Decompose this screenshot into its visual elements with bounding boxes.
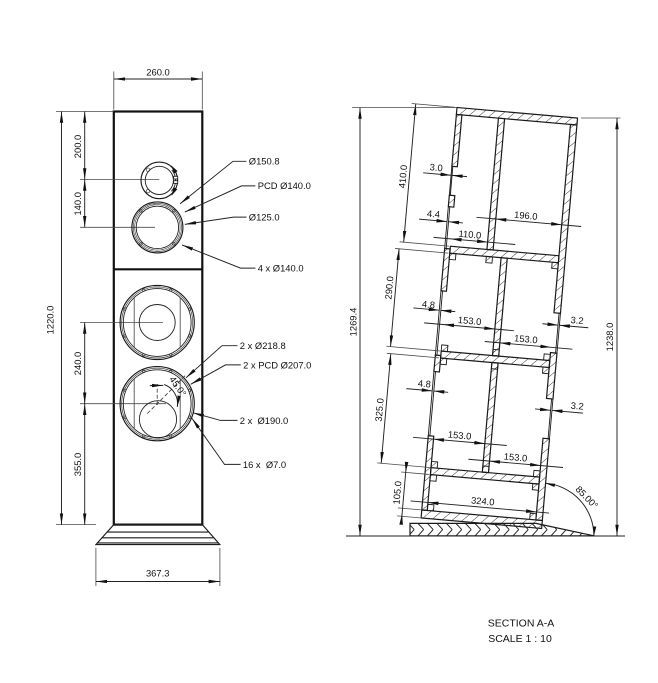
- svg-text:3.2: 3.2: [570, 314, 584, 326]
- svg-text:105.0: 105.0: [390, 481, 403, 505]
- svg-text:SCALE 1 : 10: SCALE 1 : 10: [488, 633, 552, 645]
- svg-text:4.8: 4.8: [417, 377, 431, 389]
- svg-text:4.8: 4.8: [422, 298, 436, 310]
- svg-text:1269.4: 1269.4: [347, 308, 358, 337]
- svg-text:240.0: 240.0: [72, 352, 83, 375]
- svg-text:3.0: 3.0: [429, 161, 443, 173]
- svg-text:153.0: 153.0: [447, 429, 471, 442]
- svg-text:2 x PCD Ø207.0: 2 x PCD Ø207.0: [243, 359, 311, 370]
- svg-text:1238.0: 1238.0: [604, 323, 615, 352]
- svg-text:290.0: 290.0: [382, 276, 395, 300]
- svg-text:367.3: 367.3: [146, 568, 169, 579]
- svg-text:16 x Ø7.0: 16 x Ø7.0: [243, 459, 286, 470]
- svg-text:153.0: 153.0: [514, 332, 538, 345]
- svg-text:153.0: 153.0: [503, 451, 527, 464]
- svg-text:SECTION A-A: SECTION A-A: [488, 618, 555, 630]
- svg-text:1220.0: 1220.0: [45, 306, 56, 335]
- svg-text:PCD Ø140.0: PCD Ø140.0: [258, 180, 311, 191]
- svg-text:324.0: 324.0: [471, 494, 495, 507]
- svg-text:Ø125.0: Ø125.0: [249, 211, 280, 222]
- svg-text:355.0: 355.0: [72, 453, 83, 476]
- svg-text:140.0: 140.0: [72, 192, 83, 215]
- svg-text:110.0: 110.0: [458, 228, 482, 241]
- svg-text:410.0: 410.0: [396, 164, 409, 188]
- svg-text:2 x Ø190.0: 2 x Ø190.0: [240, 415, 288, 426]
- svg-text:4.4: 4.4: [427, 208, 441, 220]
- svg-text:4 x Ø140.0: 4 x Ø140.0: [258, 262, 304, 273]
- svg-text:153.0: 153.0: [458, 314, 482, 327]
- svg-text:260.0: 260.0: [146, 67, 169, 78]
- svg-text:2 x Ø218.8: 2 x Ø218.8: [240, 340, 286, 351]
- svg-text:196.0: 196.0: [514, 209, 538, 222]
- svg-text:325.0: 325.0: [373, 398, 386, 422]
- svg-text:3.2: 3.2: [570, 400, 584, 412]
- svg-text:Ø150.8: Ø150.8: [249, 156, 280, 167]
- svg-text:200.0: 200.0: [72, 135, 83, 158]
